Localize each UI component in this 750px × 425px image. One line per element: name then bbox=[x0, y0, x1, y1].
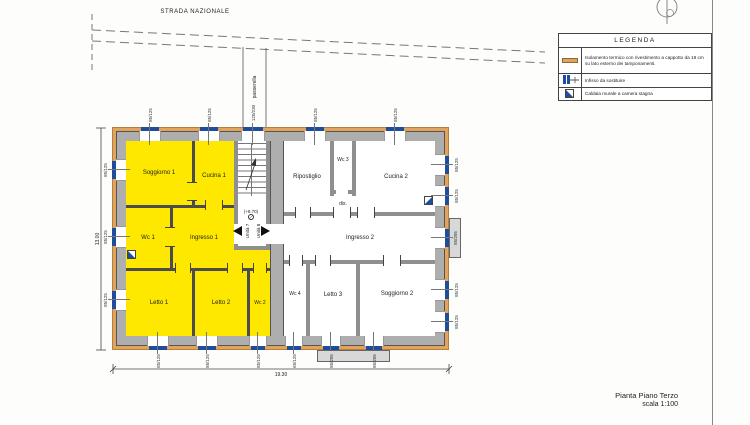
wall-segment bbox=[330, 141, 334, 196]
room-label-soggiorno2: Soggiorno 2 bbox=[367, 289, 427, 299]
window-axis-tick bbox=[108, 299, 130, 300]
window-frame bbox=[386, 127, 404, 131]
room-label-wc2: Wc 2 bbox=[250, 298, 270, 308]
door-jamb-tick bbox=[315, 255, 316, 266]
legend-item-text: Infisso da sostituire bbox=[585, 74, 709, 86]
unit7-arrow-icon bbox=[233, 226, 242, 236]
window-dim-label: 85/125 bbox=[254, 349, 262, 373]
room-label-cucina2: Cucina 2 bbox=[366, 172, 426, 182]
window bbox=[435, 279, 445, 301]
window-dim-label: 85/125 bbox=[391, 103, 399, 127]
wall-segment bbox=[222, 205, 234, 208]
window-dim-label: 85/205 bbox=[451, 226, 459, 250]
compass-inner bbox=[667, 10, 674, 17]
window-dim-label: 85/205 bbox=[327, 349, 335, 373]
door-jamb-tick bbox=[175, 263, 176, 273]
window-dim-label: 85/125 bbox=[101, 288, 109, 312]
door-jamb-tick bbox=[400, 255, 401, 266]
door-jamb-tick bbox=[165, 246, 175, 247]
window bbox=[116, 159, 126, 181]
door-jamb-tick bbox=[302, 255, 303, 266]
window bbox=[139, 131, 161, 141]
window-dim-label: 85/125 bbox=[452, 153, 460, 177]
window-frame bbox=[112, 228, 116, 246]
room-label-ingresso2: Ingresso 2 bbox=[330, 233, 390, 243]
window-dim-label: 65/125 bbox=[290, 349, 298, 373]
road-label: STRADA NAZIONALE bbox=[140, 8, 250, 16]
balcony-door bbox=[321, 336, 341, 346]
floor-plan-sheet: STRADA NAZIONALE passerella LEGENDA Isol… bbox=[0, 0, 750, 425]
wall-segment bbox=[348, 190, 356, 194]
title-block-border bbox=[712, 0, 713, 425]
legend-title: LEGENDA bbox=[559, 34, 711, 48]
window-axis-tick bbox=[431, 321, 453, 322]
window-dim-label: 85/205 bbox=[370, 349, 378, 373]
door-jamb-tick bbox=[222, 200, 223, 210]
wall-segment bbox=[400, 260, 435, 264]
room-label-soggiorno1: Soggiorno 1 bbox=[129, 168, 189, 178]
wall-segment bbox=[126, 268, 176, 271]
balcony-door bbox=[435, 227, 445, 249]
door-jamb-tick bbox=[205, 200, 206, 210]
window-dim-label: 85/125 bbox=[452, 184, 460, 208]
door-jamb-tick bbox=[383, 255, 384, 266]
door-dim-label: 120/230 bbox=[249, 101, 257, 125]
door-frame bbox=[445, 229, 449, 247]
window-frame bbox=[306, 127, 324, 131]
window-dim-label: 85/125 bbox=[205, 103, 213, 127]
door-jamb-tick bbox=[253, 263, 254, 273]
stair-treads bbox=[238, 143, 266, 196]
window bbox=[435, 311, 445, 333]
door-jamb-tick bbox=[289, 255, 290, 266]
window bbox=[285, 336, 303, 346]
window-axis-tick bbox=[431, 195, 453, 196]
wall-segment bbox=[306, 264, 310, 336]
window-frame bbox=[445, 187, 449, 205]
window-frame bbox=[445, 156, 449, 174]
room-label-ingresso1: Ingresso 1 bbox=[174, 233, 234, 243]
entrance-door bbox=[241, 131, 265, 141]
room-label-letto1: Letto 1 bbox=[129, 298, 189, 308]
window-dim-label: 85/125 bbox=[146, 103, 154, 127]
stair-stringer bbox=[251, 143, 252, 196]
door-jamb-tick bbox=[165, 227, 175, 228]
room-label-wc4: Wc 4 bbox=[285, 289, 305, 299]
boiler-icon bbox=[565, 89, 574, 98]
door-frame bbox=[243, 127, 263, 131]
window-axis-tick bbox=[252, 123, 253, 145]
wall-segment bbox=[332, 190, 336, 194]
window-to-replace-icon bbox=[562, 75, 579, 85]
legend-box: LEGENDA Isolamento termico con rivestime… bbox=[558, 33, 712, 101]
wall-segment bbox=[170, 208, 173, 228]
door-jamb-tick bbox=[295, 207, 296, 218]
window-frame bbox=[141, 127, 159, 131]
dimension-tick bbox=[446, 366, 452, 372]
compass-icon bbox=[657, 0, 677, 17]
wall-segment bbox=[310, 212, 334, 216]
door-jamb-tick bbox=[227, 263, 228, 273]
window bbox=[304, 131, 326, 141]
window bbox=[116, 289, 126, 311]
window bbox=[435, 154, 445, 176]
room-label-wc3: Wc 3 bbox=[333, 155, 353, 165]
window-frame bbox=[445, 281, 449, 299]
balcony-door bbox=[364, 336, 384, 346]
room-label-wc1: Wc 1 bbox=[118, 233, 178, 243]
window bbox=[249, 336, 267, 346]
room-label-ripostiglio: Ripostiglio bbox=[277, 172, 337, 182]
overall-width-dim: 19.30 bbox=[267, 371, 295, 379]
wall-segment bbox=[170, 246, 173, 268]
window-dim-label: 85/125 bbox=[452, 278, 460, 302]
wall-segment bbox=[356, 264, 360, 336]
window-dim-label: 85/125 bbox=[154, 349, 162, 373]
window-dim-label: 85/125 bbox=[203, 349, 211, 373]
window bbox=[147, 336, 169, 346]
legend-divider bbox=[581, 48, 582, 100]
door-jamb-tick bbox=[310, 207, 311, 218]
title-block: Pianta Piano Terzo scala 1:100 bbox=[540, 391, 678, 413]
window-frame bbox=[112, 291, 116, 309]
stair-wall bbox=[266, 141, 270, 224]
door-jamb-tick bbox=[190, 263, 191, 273]
door-jamb-tick bbox=[374, 207, 375, 218]
wall-segment bbox=[190, 268, 228, 271]
room-label-cucina1: Cucina 1 bbox=[184, 171, 244, 181]
door-jamb-tick bbox=[330, 255, 331, 266]
door-jamb-tick bbox=[187, 200, 197, 201]
drawing-scale: scala 1:100 bbox=[540, 401, 678, 408]
window-frame bbox=[112, 161, 116, 179]
unit7-entrance-label: Unità 7 bbox=[243, 216, 251, 246]
wall-segment bbox=[126, 205, 206, 208]
boiler-icon bbox=[424, 196, 433, 205]
window-axis-tick bbox=[108, 169, 130, 170]
window bbox=[384, 131, 406, 141]
window-dim-label: 85/125 bbox=[101, 225, 109, 249]
road-edge-line bbox=[92, 30, 545, 52]
window-dim-label: 85/125 bbox=[311, 103, 319, 127]
door-jamb-tick bbox=[187, 182, 197, 183]
window-axis-tick bbox=[431, 164, 453, 165]
window-dim-label: 85/125 bbox=[101, 158, 109, 182]
window-axis-tick bbox=[431, 237, 453, 238]
wall-segment bbox=[352, 141, 356, 196]
boiler-icon-triangle bbox=[425, 197, 432, 204]
window bbox=[196, 336, 218, 346]
boiler-icon-triangle bbox=[128, 251, 135, 258]
window-frame bbox=[445, 313, 449, 331]
room-label-letto2: Letto 2 bbox=[191, 298, 251, 308]
window bbox=[198, 131, 220, 141]
overall-height-dim: 13.00 bbox=[94, 225, 102, 253]
door-jamb-tick bbox=[357, 207, 358, 218]
window-dim-label: 85/125 bbox=[452, 310, 460, 334]
window-axis-tick bbox=[431, 289, 453, 290]
insulation-swatch-icon bbox=[562, 58, 578, 63]
room-label-dis: dis. bbox=[333, 199, 353, 209]
window-frame bbox=[200, 127, 218, 131]
door-jamb-tick bbox=[266, 263, 267, 273]
window bbox=[435, 185, 445, 207]
wall-segment bbox=[374, 212, 435, 216]
legend-item-text: Isolamento termico con rivestimento a ca… bbox=[585, 50, 709, 72]
central-wall-door-gap bbox=[270, 224, 284, 244]
door-jamb-tick bbox=[242, 263, 243, 273]
stair-wall bbox=[234, 246, 270, 250]
legend-item-text: Caldaia murale a camera stagna bbox=[585, 88, 709, 99]
unit8-arrow-icon bbox=[261, 226, 270, 236]
room-label-letto3: Letto 3 bbox=[303, 290, 363, 300]
boiler-icon-triangle bbox=[566, 90, 573, 97]
drawing-title: Pianta Piano Terzo bbox=[540, 391, 678, 400]
road-edge-line bbox=[92, 41, 545, 63]
dimension-tick bbox=[110, 366, 116, 372]
boiler-icon bbox=[127, 250, 136, 259]
